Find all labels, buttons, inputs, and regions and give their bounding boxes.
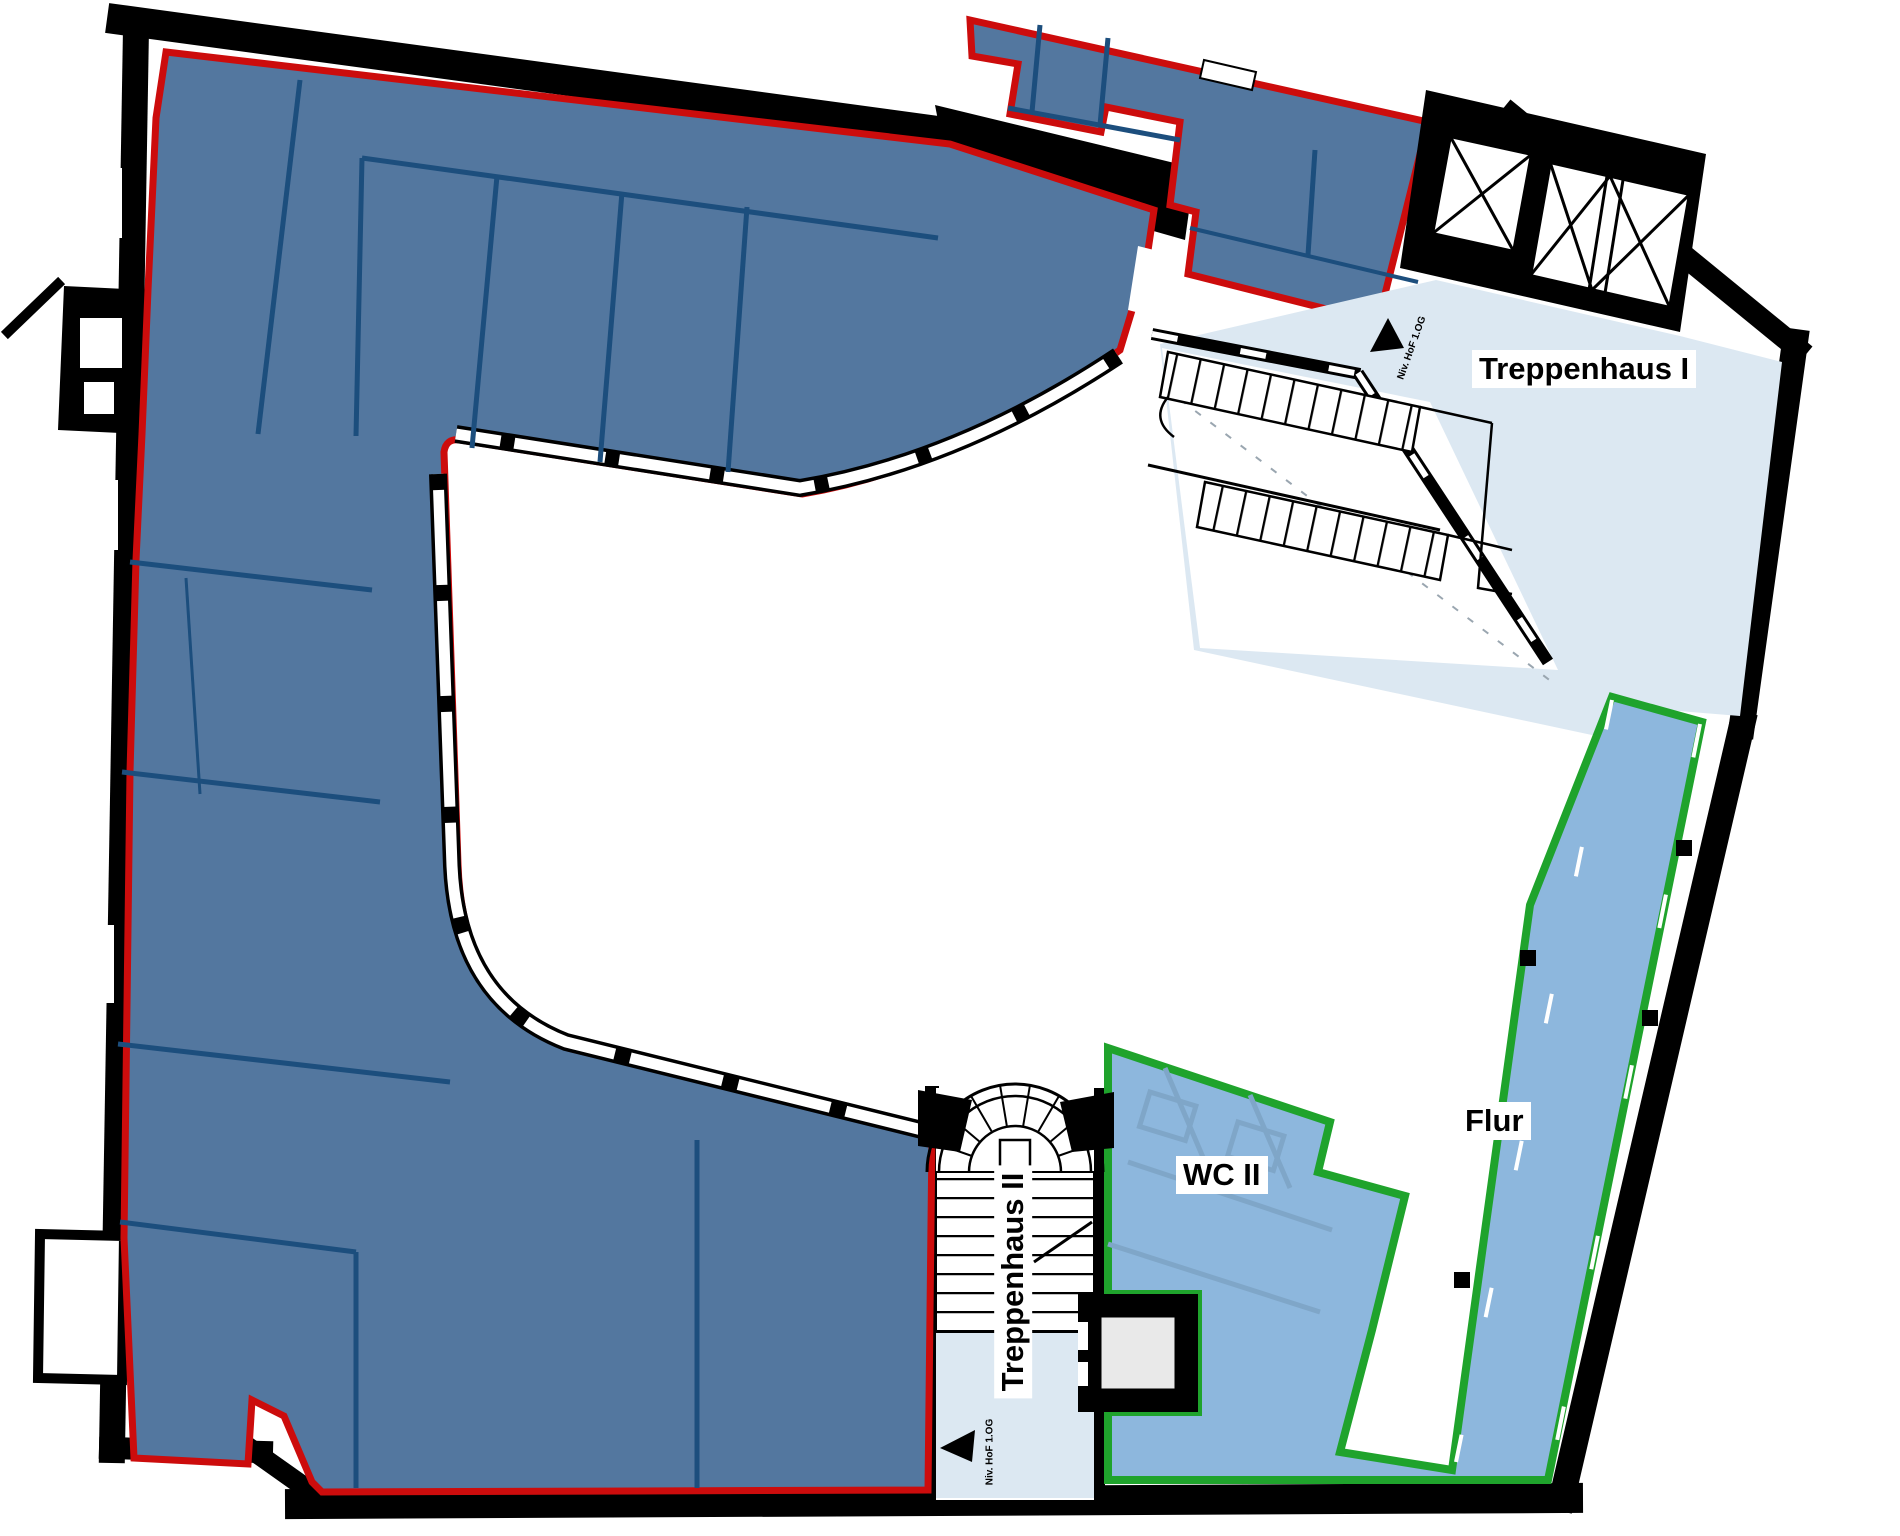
bay-window [38,1234,124,1380]
floorplan-drawing [0,0,1900,1536]
elevator-cab-icon [1100,1316,1176,1390]
floorplan-canvas: Treppenhaus I Treppenhaus II WC II Flur … [0,0,1900,1536]
level-marker-text-2: Niv. HoF 1.OG [985,1419,996,1486]
room-label-wc-2: WC II [1176,1156,1268,1194]
room-label-flur: Flur [1458,1102,1531,1140]
room-label-treppenhaus-1: Treppenhaus I [1472,350,1696,388]
room-label-treppenhaus-2: Treppenhaus II [994,1166,1032,1399]
elevator-2 [1078,1294,1198,1412]
